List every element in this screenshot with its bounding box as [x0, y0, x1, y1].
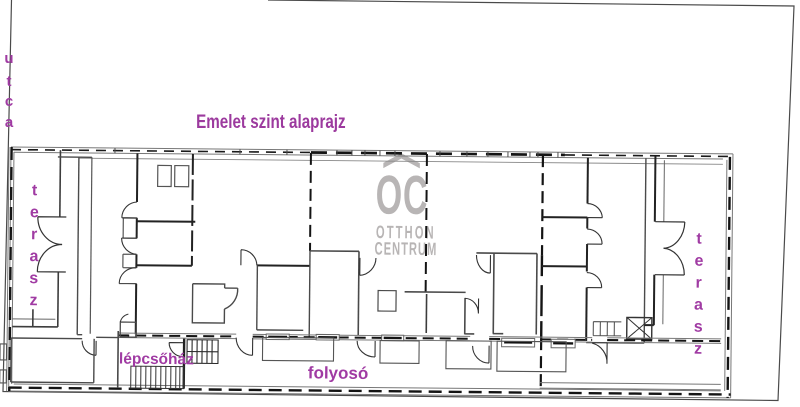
- svg-text:z: z: [29, 292, 37, 309]
- svg-text:e: e: [694, 253, 703, 270]
- svg-text:s: s: [694, 319, 703, 336]
- svg-text:e: e: [30, 204, 39, 221]
- svg-text:t: t: [696, 231, 702, 248]
- svg-text:t: t: [7, 73, 12, 90]
- svg-text:folyosó: folyosó: [308, 363, 369, 383]
- svg-text:Emelet szint alaprajz: Emelet szint alaprajz: [196, 110, 346, 132]
- svg-text:lépcsőház: lépcsőház: [119, 351, 194, 369]
- svg-text:a: a: [29, 248, 38, 265]
- svg-text:a: a: [694, 297, 703, 314]
- svg-text:t: t: [32, 182, 38, 199]
- svg-text:OC: OC: [375, 164, 428, 226]
- svg-text:a: a: [5, 114, 14, 131]
- svg-text:s: s: [29, 270, 38, 287]
- svg-text:CENTRUM: CENTRUM: [374, 239, 437, 260]
- svg-text:z: z: [694, 341, 702, 358]
- svg-text:u: u: [4, 50, 13, 67]
- svg-text:c: c: [5, 93, 13, 110]
- svg-text:r: r: [31, 226, 37, 243]
- svg-text:r: r: [696, 275, 702, 292]
